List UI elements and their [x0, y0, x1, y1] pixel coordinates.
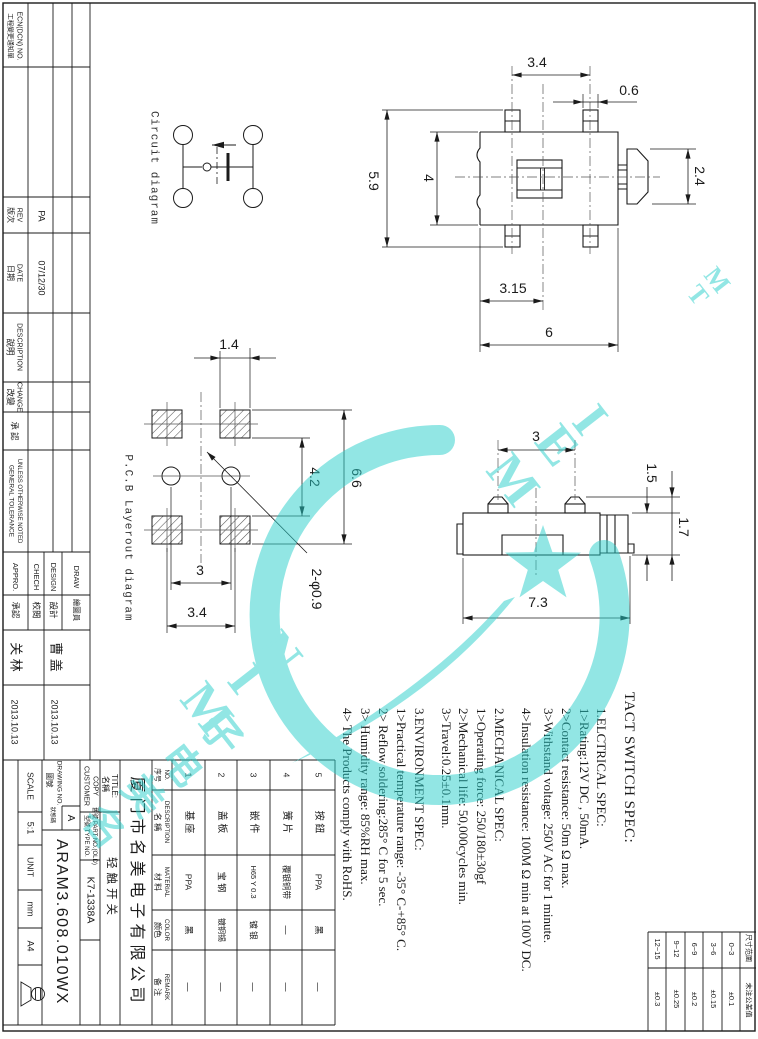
bom-remark: —: [282, 983, 291, 992]
bom-remark: —: [217, 983, 226, 992]
rev-label-zh: 版次: [6, 207, 14, 223]
status-code-value: A: [65, 815, 75, 822]
date-value: 07/12/30: [37, 260, 46, 295]
bom-part-name: 盖 板: [216, 811, 226, 834]
bom-row-no: 1: [184, 773, 193, 778]
tolerance-range: 6~9: [690, 943, 698, 956]
dim-body-width: 4: [422, 172, 436, 184]
ecn-header-zh: 工程變更通知單: [6, 13, 13, 59]
dim-pad-width: 1.4: [217, 337, 240, 351]
tolerance-range-header: 尺寸范圍: [745, 934, 752, 962]
tolerance-value: ±0.1: [727, 992, 735, 1007]
dim-bump-pitch: 3: [530, 429, 542, 443]
date-label-zh: 日期: [6, 265, 14, 281]
bom-remark: —: [314, 983, 323, 992]
pcb-layout-label: P.C.B Layerout diagram: [122, 454, 133, 621]
tolerance-range: 0~3: [727, 943, 735, 956]
switch-top-view: [477, 110, 648, 247]
bom-material: PPA: [184, 874, 193, 890]
tolerance-range: 9~12: [672, 941, 680, 958]
spec-line: 1>Practical temperature range: -35° C-+8…: [395, 708, 408, 951]
bom-part-name: 簧 片: [281, 811, 291, 834]
tolerance-value: ±0.3: [653, 992, 661, 1007]
description-label-zh: 說明: [6, 338, 15, 355]
type-no-label: 型號 TYPE NO.: [83, 815, 89, 857]
approve-row-label: 承 認: [10, 421, 19, 440]
date-label-en: DATE: [16, 264, 23, 282]
bom-no-header-zh: 序号: [154, 768, 161, 782]
bom-color: 黑: [184, 925, 193, 934]
bom-row-no: 3: [249, 773, 258, 778]
draw-label-en: DRAW: [72, 566, 80, 589]
bom-material: H65 Y 0.3: [249, 865, 257, 898]
spec-line: 3> Humidity range: 85%RH max.: [359, 708, 372, 885]
check-label-zh: 校閱: [32, 601, 41, 618]
bom-remark: —: [249, 983, 258, 992]
side-view-centerlines: [498, 440, 575, 576]
bom-color-header-en: COLOR: [163, 919, 169, 941]
dim-total-height: 1.7: [677, 515, 691, 538]
side-view-extension-lines: [463, 497, 680, 624]
bom-material-header-zh: 材 料: [153, 873, 161, 891]
drawing-no-label-en: DRAWING NO.: [55, 761, 62, 806]
unit-label: UNIT: [26, 857, 35, 877]
dim-hole-diameter: 2-φ0.9: [310, 567, 324, 612]
part-no-old-label: 舊號 PART NO.(OLD): [91, 807, 97, 865]
appro-label-en: APPRO.: [11, 563, 19, 591]
spec-line: 4> The Products comply with RoHS.: [341, 708, 354, 901]
tolerance-value: ±0.15: [709, 990, 717, 1009]
top-view-extension-lines: [382, 94, 696, 352]
change-label-en: CHANGE: [16, 382, 23, 412]
bom-color-header-zh: 颜色: [153, 922, 161, 938]
spec-line: 2>Mechanical life: 50,000cycles min.: [457, 708, 470, 905]
bom-desc-header-zh: 名 稱: [153, 813, 161, 831]
tolerance-range: 3~6: [709, 943, 717, 956]
spec-line: 3.ENVIRONMENT SPEC:: [413, 708, 426, 851]
customer-copy-1: CUSTOMER: [83, 766, 90, 806]
tolerance-value: ±0.2: [690, 992, 698, 1007]
status-code-label: 狀態碼: [48, 807, 54, 824]
design-label-zh: 設計: [49, 601, 58, 618]
rev-label-en: REV: [16, 208, 23, 222]
sheet-size: A4: [26, 940, 35, 951]
dim-actuator-width: 2.4: [693, 164, 707, 187]
top-view-centerlines: [455, 66, 660, 312]
drawing-number: ARAM3.608.010WX: [53, 839, 69, 1005]
customer-copy-2: COPY: [92, 776, 99, 796]
spec-line: 1>Rating:12V DC , 50mA.: [578, 708, 591, 849]
switch-side-view: [457, 497, 634, 555]
bom-remark-header-zh: 备 注: [153, 978, 161, 996]
bom-color: 黑: [314, 925, 323, 934]
spec-line: 2>Contact resistance: 50m Ω max.: [560, 708, 573, 889]
drawing-no-label-zh: 圖號: [45, 773, 53, 788]
approve-date: 2013.10.13: [10, 699, 19, 744]
bom-color: 镀 银: [249, 920, 258, 939]
drafter-name: 曹 盖: [50, 642, 63, 672]
bom-row-no: 5: [314, 773, 323, 778]
circuit-diagram-label: Circuit diagram: [148, 111, 159, 225]
dim-body-height: 1.5: [645, 461, 659, 484]
spec-line: 1>Operating force: 250/180±30gf: [475, 708, 488, 884]
bom-color: —: [282, 926, 291, 935]
tolerance-table-grid: [648, 932, 756, 1031]
scale-label: SCALE: [26, 772, 35, 800]
general-tolerance-note-1: GENERAL TOLERANCE: [7, 465, 14, 537]
bom-part-name: 基 座: [183, 811, 193, 834]
type-no-value: K7-1338A: [85, 877, 96, 924]
general-tolerance-note-2: UNLESS OTHERWISE NOTED: [16, 459, 22, 544]
bom-part-name: 按 鈕: [313, 811, 323, 834]
bom-material: 覆银铜带: [282, 865, 291, 899]
title-label-en: TITLE:: [110, 774, 118, 798]
scale-value: 5:1: [26, 822, 35, 835]
dim-body-length: 6: [543, 325, 555, 339]
bom-part-name: 嵌 件: [248, 811, 258, 834]
bom-material: 宝 钢: [217, 872, 226, 893]
dim-pad-span: 6.6: [350, 466, 364, 489]
part-title: 轻触开关: [104, 857, 116, 919]
dim-lead-pitch: 3.4: [525, 55, 548, 69]
dim-lead-width: 0.6: [617, 83, 640, 97]
check-label-en: CHECH: [32, 564, 40, 591]
spec-line: 1.ELCTRICAL SPEC:: [595, 708, 608, 827]
appro-label-zh: 承認: [11, 601, 20, 618]
tolerance-range: 12~15: [653, 938, 661, 959]
dim-edge-to-center: 3.15: [497, 281, 528, 295]
draw-label-zh: 繪圖員: [72, 599, 80, 622]
tolerance-value-header: 未注公差值: [745, 983, 752, 1018]
unit-value: mm: [26, 902, 35, 917]
projection-symbol: [21, 982, 45, 1006]
bom-desc-header-en: DESCRIPTION: [163, 801, 169, 843]
dim-hole-pitch: 3: [194, 563, 206, 577]
bom-no-header-en: NO.: [163, 769, 169, 780]
top-view-dimension-lines: [387, 75, 688, 345]
title-label-zh: 名稱: [101, 776, 109, 792]
spec-line: 2> Reflow soldering:285° C for 5 sec.: [377, 708, 390, 906]
bom-remark-header-en: REMARK: [163, 974, 169, 1000]
bom-material-header-en: MATERIAL: [163, 867, 169, 897]
side-view-dimension-lines: [463, 450, 672, 618]
change-label-zh: 改變: [6, 388, 15, 405]
spec-line: 2.MECHANICAL SPEC:: [493, 708, 506, 842]
dim-pad-gap: 4.2: [308, 465, 322, 488]
company-name: 厦门市名美电子有限公司: [128, 776, 144, 1007]
spec-line: 3>Travel:0.25±0.1mm.: [440, 708, 453, 829]
dim-pad-pitch: 3.4: [185, 605, 208, 619]
tolerance-value: ±0.25: [672, 990, 680, 1009]
circuit-diagram: [174, 126, 263, 208]
bom-remark: —: [184, 983, 193, 992]
bom-material: PPA: [314, 874, 323, 890]
draw-date: 2013.10.13: [50, 699, 59, 744]
description-label-en: DESCRIPTION: [16, 323, 23, 371]
dim-overall-width: 5.9: [367, 169, 381, 192]
approver-name: 关 林: [10, 642, 23, 672]
bom-row-no: 2: [217, 773, 226, 778]
ecn-header-en: ECN(DCN) NO.: [16, 12, 23, 61]
bom-color: 镀铜锡: [217, 918, 225, 942]
spec-line: 3>Withstand voltage: 250V AC for 1 minut…: [542, 708, 555, 943]
bom-row-no: 4: [282, 773, 291, 778]
dim-total-length: 7.3: [526, 595, 549, 609]
spec-line: 4>Insulation resistance: 100M Ω min at 1…: [520, 708, 533, 972]
design-label-en: DESIGN: [49, 563, 57, 592]
engineering-drawing-sheet: { "revision": { "ecn_zh": "工程變更通知單", "ec…: [0, 0, 758, 1034]
rev-value: PA: [37, 210, 46, 221]
spec-title: TACT SWITCH SPEC:: [621, 692, 636, 843]
